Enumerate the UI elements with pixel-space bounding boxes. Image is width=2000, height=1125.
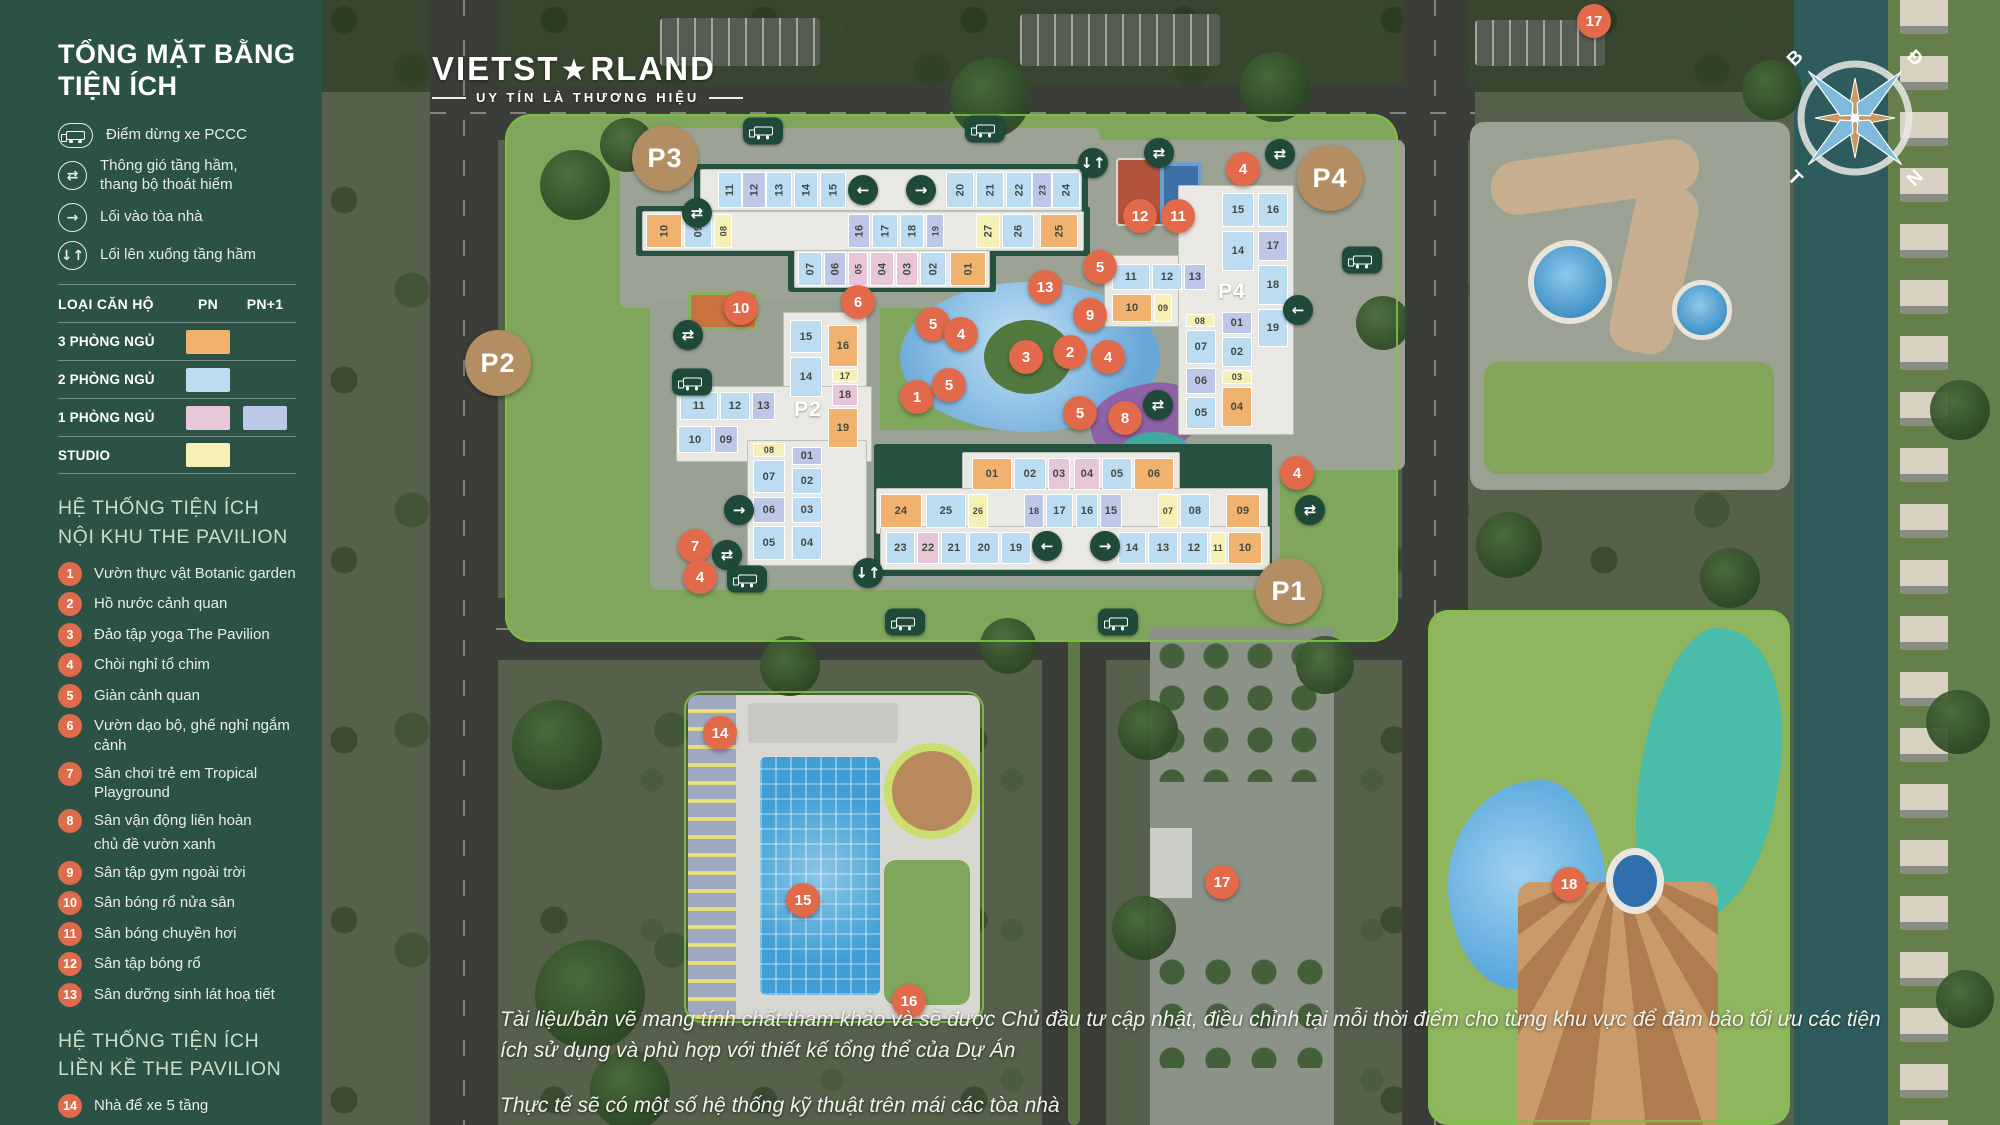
truck-glyph [896, 618, 915, 627]
unit-P1-08: 08 [1180, 494, 1210, 528]
truck-glyph [66, 131, 85, 140]
amenity-list-item: 9Sân tập gym ngoài trời [58, 860, 296, 885]
amenity-marker-4: 4 [1226, 152, 1260, 186]
unit-P4-10: 10 [1112, 294, 1152, 322]
amenity-list-item: 10Sân bóng rổ nửa sân [58, 890, 296, 915]
truck-icon [58, 123, 93, 148]
amenity-list-item: 13Sân dưỡng sinh lát hoạ tiết [58, 982, 296, 1007]
amenity-list-item: 11Sân bóng chuyền hơi [58, 921, 296, 946]
unit-P3-06: 06 [824, 252, 846, 286]
vent-icon: ⇄ [682, 198, 712, 228]
unit-P2-01: 01 [792, 447, 822, 465]
unit-P4-09: 09 [1154, 294, 1172, 322]
amenity-number-badge: 12 [58, 952, 82, 976]
unit-P4-02: 02 [1222, 337, 1252, 367]
unit-P1-24: 24 [880, 494, 922, 528]
unit-P1-12: 12 [1180, 532, 1208, 564]
amenity-label: Sân tập bóng rổ [94, 951, 201, 974]
unit-P3-04: 04 [870, 252, 894, 286]
amenity-number-badge: 3 [58, 623, 82, 647]
amenity-label: Sân tập gym ngoài trời [94, 860, 246, 883]
legend-label: Thông gió tầng hầm,thang bộ thoát hiểm [100, 157, 238, 195]
truck-glyph [754, 127, 773, 136]
arrow-right-icon: → [58, 203, 87, 232]
unit-P1-16: 16 [1076, 494, 1098, 528]
unit-P4-07: 07 [1186, 330, 1216, 364]
tagline-rule-left [432, 97, 466, 99]
unit-P1-04: 04 [1074, 458, 1100, 490]
swatch-cell-pn [180, 406, 236, 430]
arrow-left-icon: ← [848, 175, 878, 205]
truck-icon [743, 118, 783, 145]
amenity-marker-5: 5 [932, 368, 966, 402]
amenity-marker-8: 8 [1108, 401, 1142, 435]
unit-P1-06: 06 [1134, 458, 1174, 490]
arrow-right-icon: → [1090, 531, 1120, 561]
amenity-list-item: 6Vườn dạo bộ, ghế nghỉ ngắm cảnh [58, 713, 296, 755]
amenity-number-badge: 8 [58, 809, 82, 833]
unit-P1-22: 22 [917, 532, 939, 564]
table-row: 2 PHÒNG NGỦ [58, 360, 296, 398]
unit-P1-21: 21 [941, 532, 967, 564]
amenity-label: Sân dưỡng sinh lát hoạ tiết [94, 982, 275, 1005]
unit-P3-20: 20 [946, 172, 974, 208]
section-heading-line: LIỀN KỀ THE PAVILION [58, 1055, 296, 1083]
amenity-label: Sân bóng rổ nửa sân [94, 890, 235, 913]
amenity-marker-4: 4 [1280, 456, 1314, 490]
vent-icon: ⇄ [1265, 139, 1295, 169]
unit-P2-02: 02 [792, 468, 822, 494]
unit-P1-05: 05 [1102, 458, 1132, 490]
table-header-cell: LOẠI CĂN HỘ [58, 296, 180, 312]
unit-P1-03: 03 [1048, 458, 1070, 490]
unit-type-label: 2 PHÒNG NGỦ [58, 372, 180, 387]
unit-P4-05: 05 [1186, 397, 1216, 429]
table-row: 3 PHÒNG NGỦ [58, 322, 296, 360]
amenity-number-badge: 10 [58, 891, 82, 915]
amenity-list-item: 7Sân chơi trẻ em Tropical Playground [58, 761, 296, 803]
unit-P2-17: 17 [832, 369, 858, 382]
unit-P3-18: 18 [900, 214, 924, 248]
unit-P3-27: 27 [976, 214, 1000, 248]
amenity-label: Đảo tập yoga The Pavilion [94, 622, 270, 645]
color-swatch [243, 406, 287, 430]
amenity-label: Nhà để xe 5 tầng [94, 1093, 208, 1116]
unit-P1-15: 15 [1100, 494, 1122, 528]
amenity-marker-18: 18 [1552, 867, 1586, 901]
amenity-marker-3: 3 [1009, 340, 1043, 374]
unit-P4-04: 04 [1222, 387, 1252, 427]
legend-sidebar: TỔNG MẶT BẰNG TIỆN ÍCH Điểm dừng xe PCCC… [0, 0, 322, 1125]
swatch-cell-pn [180, 330, 236, 354]
amenity-label-line2: chủ đề vườn xanh [94, 835, 252, 855]
amenity-list-item: 12Sân tập bóng rổ [58, 951, 296, 976]
disclaimer-line-1: Tài liệu/bản vẽ mang tính chất tham khảo… [500, 1004, 1970, 1035]
amenity-number-badge: 5 [58, 684, 82, 708]
block-label-P2: P2 [465, 330, 531, 396]
unit-P3-08: 08 [714, 214, 732, 248]
amenity-marker-12: 12 [1123, 199, 1157, 233]
unit-P2-09: 09 [714, 426, 738, 453]
truck-glyph [683, 378, 702, 387]
unit-P3-12: 12 [742, 172, 766, 208]
section-heading-line: HỆ THỐNG TIỆN ÍCH [58, 1027, 296, 1055]
amenity-number-badge: 9 [58, 861, 82, 885]
table-header-cell: PN+1 [236, 296, 294, 312]
updown-icon: ↓↑ [1078, 148, 1108, 178]
swatch-cell-pn [180, 443, 236, 467]
unit-P3-10: 10 [646, 214, 682, 248]
unit-P3-11: 11 [718, 172, 742, 208]
section-heading-line: HỆ THỐNG TIỆN ÍCH [58, 494, 296, 522]
unit-P1-20: 20 [969, 532, 999, 564]
unit-P2-03: 03 [792, 497, 822, 523]
unit-P1-09: 09 [1226, 494, 1260, 528]
unit-P1-13: 13 [1148, 532, 1178, 564]
legend-label: Lối vào tòa nhà [100, 208, 203, 227]
amenity-label: Vườn thực vật Botanic garden [94, 561, 296, 584]
unit-P3-05: 05 [848, 252, 868, 286]
unit-P4-03: 03 [1222, 370, 1252, 384]
legend-label: Lối lên xuống tầng hầm [100, 246, 256, 265]
amenity-sections: HỆ THỐNG TIỆN ÍCHNỘI KHU THE PAVILION1Vư… [58, 494, 296, 1125]
unit-P3-01: 01 [950, 252, 986, 286]
unit-P3-24: 24 [1052, 172, 1080, 208]
vent-icon: ⇄ [58, 161, 87, 190]
arrow-left-icon: ← [1032, 531, 1062, 561]
unit-type-label: STUDIO [58, 448, 180, 463]
building-text-P4: P4 [1218, 280, 1246, 304]
unit-P2-16: 16 [828, 325, 858, 367]
amenity-marker-6: 6 [841, 285, 875, 319]
arrow-right-icon: → [906, 175, 936, 205]
star-icon: ★ [561, 53, 590, 88]
unit-P3-15: 15 [820, 172, 846, 208]
truck-glyph [976, 125, 995, 134]
compass-label-south: N [1903, 166, 1928, 191]
unit-P1-14: 14 [1118, 532, 1146, 564]
tagline-rule-right [709, 97, 743, 99]
table-row: 1 PHÒNG NGỦ [58, 398, 296, 436]
unit-P1-25: 25 [926, 494, 966, 528]
unit-P1-18: 18 [1024, 494, 1044, 528]
unit-P2-14: 14 [790, 357, 822, 397]
amenity-label: Giàn cảnh quan [94, 683, 200, 706]
unit-P1-11: 11 [1210, 532, 1226, 564]
color-swatch [186, 330, 230, 354]
amenity-marker-2: 2 [1053, 335, 1087, 369]
amenity-number-badge: 14 [58, 1094, 82, 1118]
table-header-cell: PN [180, 296, 236, 312]
unit-P3-22: 22 [1006, 172, 1032, 208]
compass-label-north: B [1783, 46, 1808, 71]
block-label-P4: P4 [1297, 145, 1363, 211]
unit-P3-26: 26 [1002, 214, 1034, 248]
vent-icon: ⇄ [673, 320, 703, 350]
unit-P1-10: 10 [1228, 532, 1262, 564]
unit-P2-05: 05 [753, 526, 785, 560]
unit-P4-13: 13 [1184, 264, 1206, 290]
amenity-label: Vườn dạo bộ, ghế nghỉ ngắm cảnh [94, 713, 296, 755]
swatch-cell-pn [180, 368, 236, 392]
amenity-marker-17: 17 [1205, 865, 1239, 899]
logo-text-part2: RLAND [590, 50, 715, 88]
amenity-number-badge: 4 [58, 653, 82, 677]
unit-type-label: 1 PHÒNG NGỦ [58, 410, 180, 425]
unit-P4-18: 18 [1258, 265, 1288, 305]
amenity-list-item: 2Hồ nước cảnh quan [58, 591, 296, 616]
amenity-list-item: 5Giàn cảnh quan [58, 683, 296, 708]
unit-P2-06: 06 [753, 497, 785, 523]
arrow-left-icon: ← [1283, 295, 1313, 325]
unit-P1-07: 07 [1158, 494, 1178, 528]
amenity-number-badge: 2 [58, 592, 82, 616]
amenity-marker-17: 17 [1577, 4, 1611, 38]
amenity-list-item: 3Đảo tập yoga The Pavilion [58, 622, 296, 647]
legend-item: ↓↑Lối lên xuống tầng hầm [58, 241, 296, 270]
building-text-P2: P2 [794, 398, 822, 422]
unit-P2-18: 18 [832, 384, 858, 406]
unit-P1-23: 23 [886, 532, 915, 564]
table-header-row: LOẠI CĂN HỘPNPN+1 [58, 284, 296, 322]
amenity-number-badge: 6 [58, 714, 82, 738]
unit-P3-21: 21 [976, 172, 1004, 208]
amenity-marker-11: 11 [1161, 199, 1195, 233]
truck-icon [672, 369, 712, 396]
page-title: TỔNG MẶT BẰNG TIỆN ÍCH [58, 38, 296, 103]
amenity-marker-1: 1 [900, 380, 934, 414]
amenity-marker-5: 5 [1083, 250, 1117, 284]
amenity-marker-9: 9 [1073, 298, 1107, 332]
vietstarland-logo: VIETST★RLAND UY TÍN LÀ THƯƠNG HIỆU [432, 50, 743, 105]
amenity-marker-7: 7 [678, 529, 712, 563]
amenity-label: Sân chơi trẻ em Tropical Playground [94, 761, 296, 803]
unit-type-table: LOẠI CĂN HỘPNPN+13 PHÒNG NGỦ2 PHÒNG NGỦ1… [58, 284, 296, 474]
updown-icon: ↓↑ [853, 558, 883, 588]
legend-item: Điểm dừng xe PCCC [58, 123, 296, 148]
compass-rose: B Đ N T [1770, 33, 1940, 203]
unit-P3-25: 25 [1040, 214, 1078, 248]
amenity-number-badge: 1 [58, 562, 82, 586]
unit-P1-01: 01 [972, 458, 1012, 490]
truck-icon [1098, 609, 1138, 636]
unit-P4-17: 17 [1258, 231, 1288, 261]
amenity-label: Sân bóng chuyền hơi [94, 921, 236, 944]
truck-icon [965, 116, 1005, 143]
unit-P3-02: 02 [920, 252, 946, 286]
amenity-label: Chòi nghỉ tổ chim [94, 652, 210, 675]
unit-P1-17: 17 [1046, 494, 1073, 528]
compass-label-west: T [1783, 167, 1806, 190]
amenity-label: Hồ nước cảnh quan [94, 591, 227, 614]
amenity-marker-5: 5 [1063, 396, 1097, 430]
unit-P2-07: 07 [753, 460, 785, 493]
unit-P4-14: 14 [1222, 231, 1254, 271]
logo-text-part1: VIETST [432, 50, 560, 88]
unit-P4-16: 16 [1258, 193, 1288, 227]
amenity-list-item: 4Chòi nghỉ tổ chim [58, 652, 296, 677]
unit-P3-03: 03 [896, 252, 918, 286]
amenity-marker-13: 13 [1028, 270, 1062, 304]
unit-P2-15: 15 [790, 320, 822, 353]
arrow-right-icon: → [724, 495, 754, 525]
disclaimer: Tài liệu/bản vẽ mang tính chất tham khảo… [500, 1004, 1970, 1121]
disclaimer-line-2: ích sử dụng và phù hợp với thiết kế tổng… [500, 1035, 1970, 1066]
amenity-marker-14: 14 [703, 716, 737, 750]
amenity-marker-4: 4 [944, 317, 978, 351]
amenity-marker-4: 4 [1091, 340, 1125, 374]
legend-item: ⇄Thông gió tầng hầm,thang bộ thoát hiểm [58, 157, 296, 195]
unit-P3-14: 14 [794, 172, 818, 208]
compass-label-east: Đ [1902, 46, 1927, 71]
unit-P1-02: 02 [1014, 458, 1046, 490]
unit-P1-19: 19 [1001, 532, 1031, 564]
unit-P4-06: 06 [1186, 368, 1216, 394]
amenity-number-badge: 7 [58, 762, 82, 786]
amenity-number-badge: 13 [58, 983, 82, 1007]
amenity-marker-4: 4 [683, 560, 717, 594]
unit-P4-15: 15 [1222, 193, 1254, 227]
unit-P4-11: 11 [1112, 264, 1150, 290]
truck-glyph [1109, 618, 1128, 627]
amenity-list-item: 1Vườn thực vật Botanic garden [58, 561, 296, 586]
unit-P2-08: 08 [753, 443, 785, 457]
truck-glyph [1353, 256, 1372, 265]
unit-P3-19: 19 [926, 214, 944, 248]
color-swatch [186, 443, 230, 467]
section-heading: HỆ THỐNG TIỆN ÍCHNỘI KHU THE PAVILION [58, 494, 296, 551]
updown-icon: ↓↑ [58, 241, 87, 270]
truck-icon [1342, 247, 1382, 274]
unit-P2-19: 19 [828, 408, 858, 448]
unit-type-label: 3 PHÒNG NGỦ [58, 334, 180, 349]
disclaimer-line-3: Thực tế sẽ có một số hệ thống kỹ thuật t… [500, 1090, 1970, 1121]
table-row: STUDIO [58, 436, 296, 474]
truck-icon [727, 566, 767, 593]
amenity-marker-10: 10 [724, 291, 758, 325]
unit-P2-11: 11 [680, 392, 718, 420]
unit-P2-13: 13 [752, 392, 775, 420]
vent-icon: ⇄ [1143, 390, 1173, 420]
unit-P3-16: 16 [848, 214, 870, 248]
amenity-marker-15: 15 [786, 883, 820, 917]
unit-P2-12: 12 [720, 392, 750, 420]
section-heading: HỆ THỐNG TIỆN ÍCHLIỀN KỀ THE PAVILION [58, 1027, 296, 1084]
unit-P2-10: 10 [678, 426, 712, 453]
block-label-P3: P3 [632, 125, 698, 191]
color-swatch [186, 406, 230, 430]
block-label-P1: P1 [1256, 558, 1322, 624]
amenity-list-item: 14Nhà để xe 5 tầng [58, 1093, 296, 1118]
amenity-number-badge: 11 [58, 922, 82, 946]
legend-label: Điểm dừng xe PCCC [106, 126, 247, 145]
vent-icon: ⇄ [1295, 495, 1325, 525]
swatch-cell-pn1 [236, 406, 294, 430]
unit-P3-07: 07 [798, 252, 822, 286]
unit-P2-04: 04 [792, 526, 822, 560]
unit-P4-01: 01 [1222, 312, 1252, 334]
logo-tagline: UY TÍN LÀ THƯƠNG HIỆU [476, 90, 699, 105]
unit-P3-17: 17 [872, 214, 898, 248]
truck-icon [885, 609, 925, 636]
legend-item: →Lối vào tòa nhà [58, 203, 296, 232]
amenity-list-item: 8Sân vận động liên hoànchủ đề vườn xanh [58, 808, 296, 854]
truck-glyph [738, 575, 757, 584]
unit-P1-26: 26 [968, 494, 988, 528]
unit-P4-12: 12 [1152, 264, 1182, 290]
vent-icon: ⇄ [1144, 138, 1174, 168]
legend-list: Điểm dừng xe PCCC⇄Thông gió tầng hầm,tha… [58, 123, 296, 271]
amenity-label: Sân vận động liên hoànchủ đề vườn xanh [94, 808, 252, 854]
section-heading-line: NỘI KHU THE PAVILION [58, 523, 296, 551]
unit-P3-13: 13 [766, 172, 792, 208]
unit-P4-08: 08 [1186, 314, 1214, 327]
color-swatch [186, 368, 230, 392]
master-plan-page: 1112131415202122232410090816171819272625… [0, 0, 2000, 1125]
unit-P3-23: 23 [1032, 172, 1052, 208]
